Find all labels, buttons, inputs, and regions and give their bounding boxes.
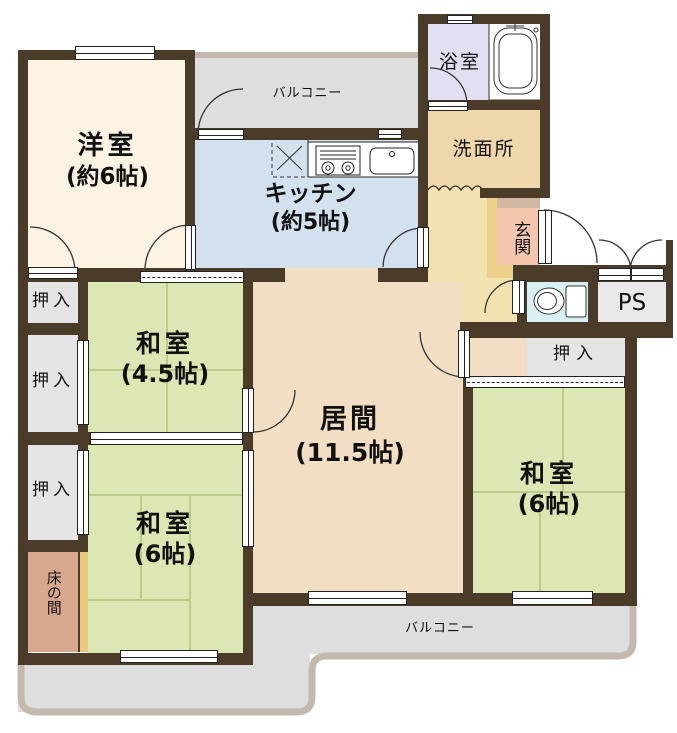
- label-balcony-top: バルコニー: [240, 86, 375, 102]
- door-pipe-space-left: [598, 268, 631, 281]
- label-balcony-bottom: バルコニー: [375, 621, 505, 637]
- label-japanese-45: 和室 (4.5帖): [87, 328, 243, 389]
- window-bathroom-top: [447, 15, 473, 24]
- wall: [18, 540, 88, 552]
- label-entrance: 玄関: [509, 211, 530, 265]
- window-japanese-6-left-bottom: [120, 650, 218, 663]
- label-tokonoma: 床の間: [44, 556, 63, 628]
- wall: [460, 322, 673, 338]
- wall: [418, 14, 550, 24]
- balcony-top-text: バルコニー: [273, 86, 343, 101]
- wall: [18, 50, 28, 665]
- door-kitchen-balcony: [198, 129, 244, 140]
- window-living-bottom: [308, 591, 407, 605]
- hallway-main: [428, 188, 487, 290]
- door-western-kitchen: [185, 225, 196, 270]
- label-washroom: 洗面所: [424, 138, 544, 162]
- door-living: [458, 330, 470, 378]
- japanese-6-right-name: 和室: [473, 458, 625, 489]
- room-living-notch: [285, 268, 378, 282]
- window-japanese-6-right-bottom: [512, 591, 593, 605]
- kitchen-size: (約5帖): [213, 209, 408, 237]
- label-closet-3: 押入: [18, 480, 88, 501]
- japanese-45-name: 和室: [87, 328, 243, 359]
- room-toilet: [527, 282, 588, 322]
- label-closet-1: 押入: [18, 291, 88, 312]
- wall: [625, 322, 637, 606]
- western-room-size: (約6帖): [30, 163, 185, 192]
- western-room-name: 洋室: [30, 130, 185, 163]
- sliding-door-japanese-45-6-left: [90, 432, 243, 445]
- door-pipe-space-right: [631, 268, 664, 281]
- floor-plan: バルコニー 洋室 (約6帖) キッチン (約5帖) 浴室 洗面所 玄関 PS 押…: [0, 0, 677, 733]
- japanese-6-right-size: (6帖): [473, 489, 625, 519]
- window-western-top: [75, 46, 155, 60]
- japanese-6-left-name: 和室: [87, 508, 243, 539]
- door-kitchen-hall: [417, 227, 429, 268]
- label-japanese-6-right: 和室 (6帖): [473, 458, 625, 519]
- label-japanese-6-left: 和室 (6帖): [87, 508, 243, 569]
- label-living-room: 居間 (11.5帖): [250, 403, 450, 468]
- label-kitchen: キッチン (約5帖): [213, 180, 408, 236]
- door-western-closet: [28, 267, 78, 279]
- living-room-name: 居間: [250, 403, 450, 437]
- wall: [378, 268, 428, 282]
- wall: [463, 377, 473, 606]
- window-kitchen-top: [378, 129, 402, 139]
- sliding-door-closet-right: [465, 376, 625, 388]
- door-entrance: [538, 210, 552, 264]
- entrance-step: [497, 198, 540, 208]
- japanese-6-left-size: (6帖): [87, 539, 243, 569]
- wall: [588, 282, 598, 322]
- living-room-size: (11.5帖): [250, 437, 450, 468]
- label-closet-2: 押入: [18, 371, 88, 392]
- sliding-door-japanese-45-top: [140, 271, 244, 283]
- label-closet-right: 押入: [527, 344, 625, 365]
- door-toilet: [512, 280, 525, 314]
- kitchen-name: キッチン: [213, 180, 408, 209]
- door-bathroom: [428, 101, 468, 111]
- balcony-bottom-text: バルコニー: [405, 621, 475, 636]
- wall: [480, 188, 550, 198]
- label-western-room: 洋室 (約6帖): [30, 130, 185, 191]
- label-pipe-space: PS: [598, 289, 666, 318]
- wall: [18, 323, 88, 335]
- japanese-45-size: (4.5帖): [87, 359, 243, 389]
- label-bathroom: 浴室: [420, 51, 500, 75]
